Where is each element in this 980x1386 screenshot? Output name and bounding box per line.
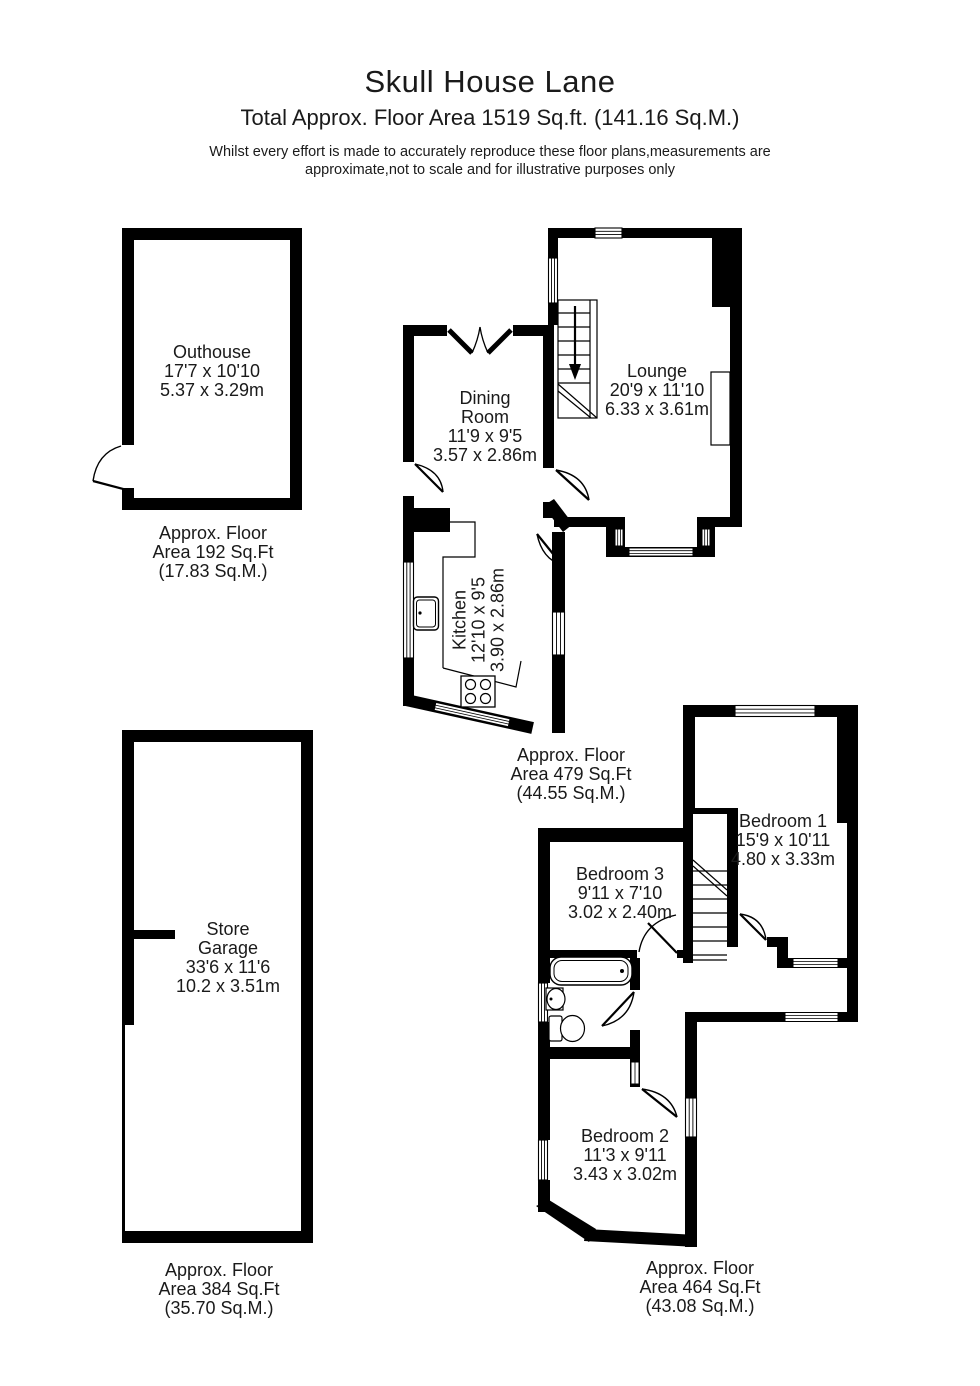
outhouse-label: Outhouse 17'7 x 10'10 5.37 x 3.29m	[160, 343, 264, 400]
kitchen-sink	[414, 597, 439, 630]
bedroom3-label: Bedroom 3 9'11 x 7'10 3.02 x 2.40m	[568, 865, 672, 922]
bedroom2-right-window	[686, 1098, 697, 1137]
dining-side-door	[415, 464, 443, 492]
lounge-chimney-recess	[711, 372, 730, 445]
garage-label: Store Garage 33'6 x 11'6 10.2 x 3.51m	[176, 920, 280, 996]
bedroom2-door	[642, 1089, 677, 1117]
staircase-up	[693, 860, 727, 960]
lounge-left-window	[549, 258, 558, 303]
garage-area-label: Approx. Floor Area 384 Sq.Ft (35.70 Sq.M…	[158, 1261, 279, 1318]
bedroom1-top-window	[735, 706, 815, 717]
outhouse-door	[93, 446, 131, 491]
lounge-label: Lounge 20'9 x 11'10 6.33 x 3.61m	[605, 362, 709, 419]
toilet	[549, 1016, 585, 1042]
lounge-top-window	[595, 228, 622, 238]
first-floor-area-label: Approx. Floor Area 464 Sq.Ft (43.08 Sq.M…	[639, 1259, 760, 1316]
kitchen-right-window	[553, 612, 565, 655]
kitchen-label: Kitchen 12'10 x 9'5 3.90 x 2.86m	[451, 568, 508, 672]
landing-bottom-window	[785, 1013, 838, 1022]
ground-floor-area-label: Approx. Floor Area 479 Sq.Ft (44.55 Sq.M…	[510, 746, 631, 803]
landing-top-window	[793, 959, 838, 968]
floorplan-page: Skull House Lane Total Approx. Floor Are…	[0, 0, 980, 1386]
dining-patio-double-door	[449, 327, 511, 353]
floorplan-drawing	[0, 0, 980, 1386]
bathroom-door	[602, 992, 634, 1026]
dining-room-label: Dining Room 11'9 x 9'5 3.57 x 2.86m	[433, 389, 537, 465]
bathtub	[550, 957, 632, 985]
staircase-down	[558, 300, 597, 418]
bedroom2-entry-panel-window	[631, 1062, 639, 1084]
bedroom1-door	[740, 914, 766, 940]
bedroom1-label: Bedroom 1 15'9 x 10'11 4.80 x 3.33m	[731, 812, 835, 869]
wash-basin	[546, 988, 565, 1010]
bedroom2-label: Bedroom 2 11'3 x 9'11 3.43 x 3.02m	[573, 1127, 677, 1184]
outhouse-area-label: Approx. Floor Area 192 Sq.Ft (17.83 Sq.M…	[152, 524, 273, 581]
bedroom2-left-window	[539, 1140, 548, 1180]
kitchen-left-window	[404, 562, 414, 658]
kitchen-stove	[461, 676, 495, 707]
dining-hall-door	[556, 470, 589, 500]
